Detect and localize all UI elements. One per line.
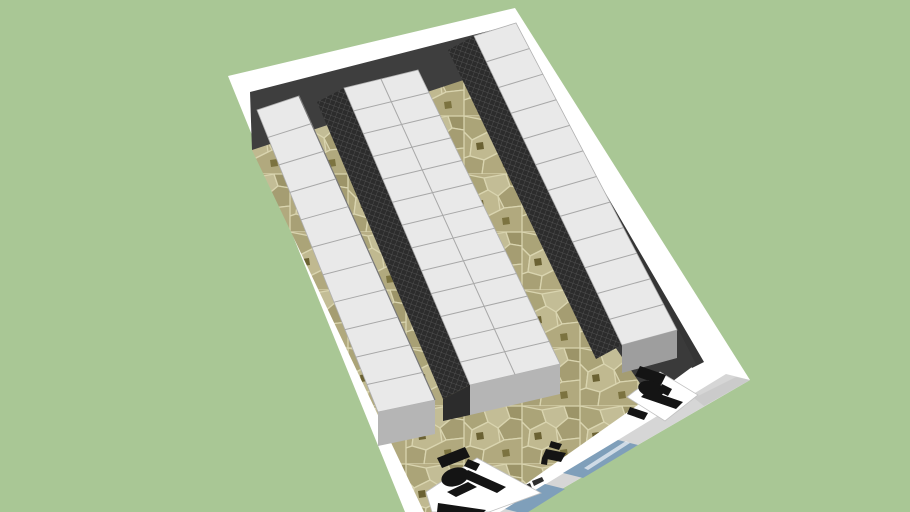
model-viewport — [0, 0, 910, 512]
